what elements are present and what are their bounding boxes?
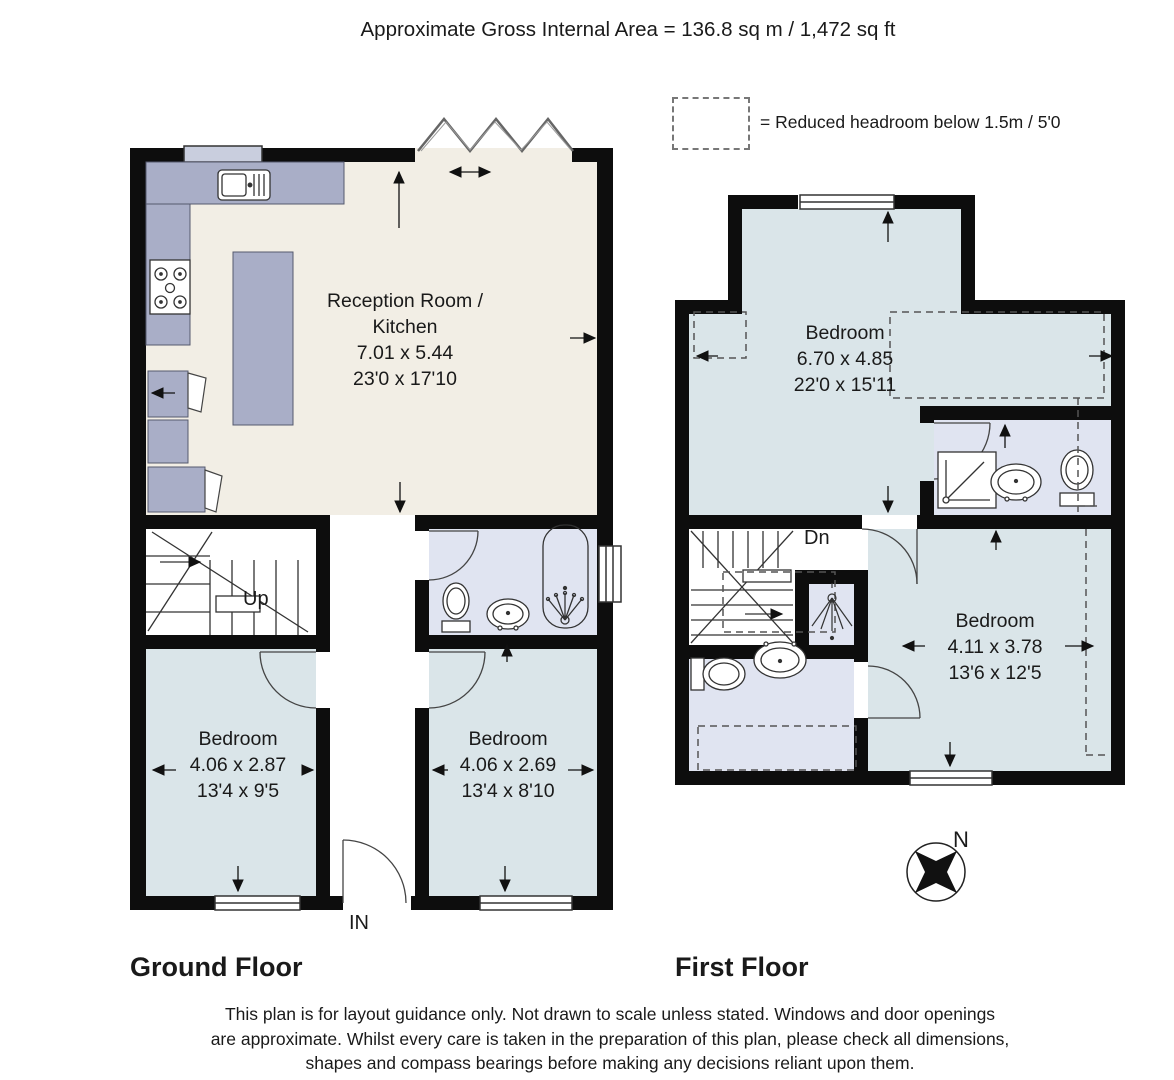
- basin-icon: [991, 464, 1041, 501]
- basin-icon: [754, 642, 806, 678]
- hob-icon: [150, 260, 190, 314]
- room-name: Bedroom: [755, 320, 935, 346]
- disclaimer-line: are approximate. Whilst every care is ta…: [60, 1027, 1160, 1052]
- floorplan-drawing: [0, 0, 1174, 1080]
- basin-icon: [487, 599, 529, 630]
- stairs-up-label: Up: [243, 588, 269, 611]
- floorplan-page: Approximate Gross Internal Area = 136.8 …: [0, 0, 1174, 1080]
- compass-north-label: N: [953, 827, 969, 853]
- window: [599, 546, 621, 602]
- shower-icon: [938, 452, 996, 508]
- disclaimer: This plan is for layout guidance only. N…: [60, 1002, 1160, 1076]
- room-label-reception-kitchen: Reception Room / Kitchen 7.01 x 5.44 23'…: [295, 288, 515, 392]
- room-dim-metric: 4.11 x 3.78: [905, 634, 1085, 660]
- room-name: Bedroom: [905, 608, 1085, 634]
- legend-label: = Reduced headroom below 1.5m / 5'0: [760, 112, 1061, 133]
- bifold-doors-icon: [418, 119, 573, 151]
- room-label-bedroom-main: Bedroom 6.70 x 4.85 22'0 x 15'11: [755, 320, 935, 398]
- reduced-headroom-swatch: [672, 97, 750, 150]
- room-name: Bedroom: [418, 726, 598, 752]
- room-dim-imperial: 13'4 x 9'5: [148, 778, 328, 804]
- ground-floor-title: Ground Floor: [130, 952, 302, 983]
- room-dim-metric: 4.06 x 2.69: [418, 752, 598, 778]
- hallway-floor: [330, 515, 415, 896]
- room-dim-metric: 7.01 x 5.44: [295, 340, 515, 366]
- room-name: Reception Room / Kitchen: [305, 288, 505, 340]
- bedroom-main-floor: [742, 209, 961, 314]
- first-floor-plan: [675, 195, 1125, 785]
- toilet-icon: [442, 583, 470, 632]
- disclaimer-line: This plan is for layout guidance only. N…: [60, 1002, 1160, 1027]
- room-dim-metric: 6.70 x 4.85: [755, 346, 935, 372]
- toilet-icon: [691, 658, 745, 690]
- room-dim-imperial: 22'0 x 15'11: [755, 372, 935, 398]
- room-label-bedroom-left: Bedroom 4.06 x 2.87 13'4 x 9'5: [148, 726, 328, 804]
- toilet-icon: [1060, 450, 1094, 506]
- room-label-bedroom-right: Bedroom 4.06 x 2.69 13'4 x 8'10: [418, 726, 598, 804]
- kitchen-island: [233, 252, 293, 425]
- room-dim-imperial: 13'6 x 12'5: [905, 660, 1085, 686]
- room-name: Bedroom: [148, 726, 328, 752]
- room-label-bedroom-rear: Bedroom 4.11 x 3.78 13'6 x 12'5: [905, 608, 1085, 686]
- room-dim-imperial: 23'0 x 17'10: [295, 366, 515, 392]
- stairs-down-label: Dn: [804, 527, 830, 550]
- kitchen-sink-icon: [218, 170, 270, 200]
- room-dim-imperial: 13'4 x 8'10: [418, 778, 598, 804]
- entrance-label: IN: [349, 912, 369, 935]
- first-floor-title: First Floor: [675, 952, 809, 983]
- page-title: Approximate Gross Internal Area = 136.8 …: [82, 18, 1174, 42]
- window: [184, 146, 262, 162]
- disclaimer-line: shapes and compass bearings before makin…: [60, 1051, 1160, 1076]
- room-dim-metric: 4.06 x 2.87: [148, 752, 328, 778]
